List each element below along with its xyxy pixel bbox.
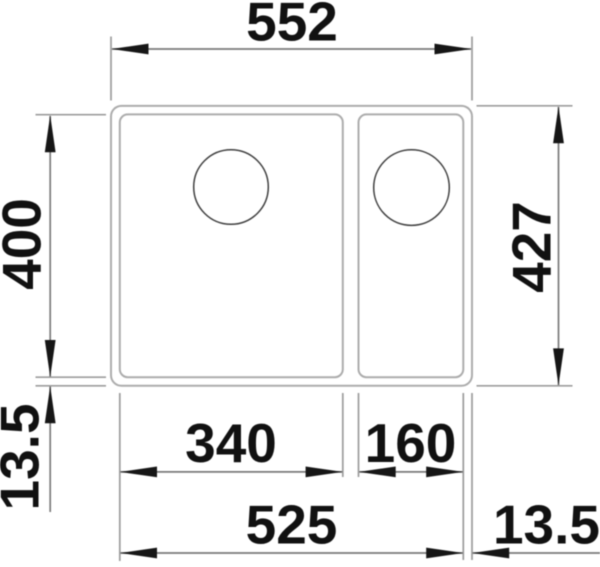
svg-text:13.5: 13.5 bbox=[493, 494, 600, 556]
svg-text:160: 160 bbox=[365, 412, 457, 474]
svg-text:13.5: 13.5 bbox=[0, 403, 51, 510]
svg-text:400: 400 bbox=[0, 198, 53, 290]
svg-text:427: 427 bbox=[501, 201, 563, 293]
svg-text:525: 525 bbox=[246, 494, 338, 556]
svg-text:340: 340 bbox=[185, 412, 277, 474]
svg-text:552: 552 bbox=[246, 0, 338, 53]
